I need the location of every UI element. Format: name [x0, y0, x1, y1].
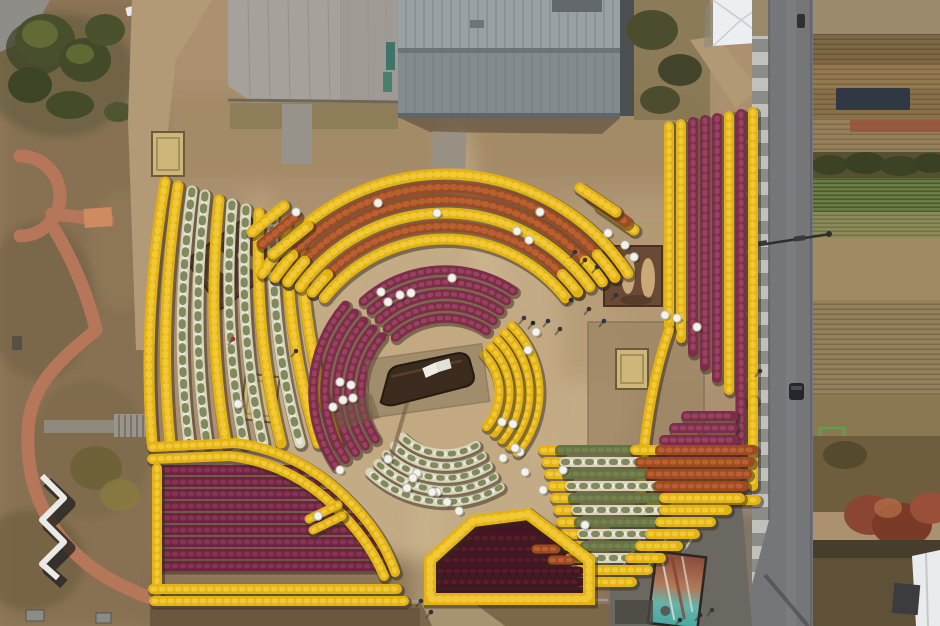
white-ball	[524, 346, 532, 354]
park-bench	[26, 610, 44, 621]
roof-vent	[470, 20, 484, 28]
entrance-walk	[431, 131, 466, 168]
person	[558, 327, 563, 332]
person	[758, 369, 763, 374]
gray-walkway	[282, 104, 312, 164]
white-ball	[433, 209, 441, 217]
white-ball	[604, 229, 612, 237]
person	[573, 250, 578, 255]
white-ball	[349, 394, 357, 402]
roof-ridge	[398, 48, 620, 53]
white-ball	[384, 455, 392, 463]
person	[698, 613, 703, 618]
white-ball	[509, 420, 517, 428]
roof-block	[552, 0, 602, 12]
white-ball	[314, 512, 322, 520]
white-ball	[407, 289, 415, 297]
white-ball	[536, 208, 544, 216]
white-ball	[336, 378, 344, 386]
animal-sculpture	[641, 258, 655, 298]
person	[569, 298, 574, 303]
white-ball	[661, 311, 669, 319]
white-ball	[292, 208, 300, 216]
person	[583, 258, 588, 263]
white-ball	[409, 474, 417, 482]
white-ball	[374, 199, 382, 207]
white-ball	[539, 486, 547, 494]
field-tarp	[836, 88, 910, 110]
person	[587, 307, 592, 312]
white-ball	[525, 236, 533, 244]
white-ball	[630, 253, 638, 261]
white-ball	[521, 468, 529, 476]
white-ball	[377, 288, 385, 296]
person	[522, 316, 527, 321]
person	[429, 610, 434, 615]
white-ball	[403, 484, 411, 492]
person	[531, 321, 536, 326]
white-ball	[443, 498, 451, 506]
park-bench	[96, 613, 111, 623]
white-ball	[347, 381, 355, 389]
white-ball	[336, 466, 344, 474]
grass-strip	[230, 103, 398, 129]
dark-equipment	[892, 583, 921, 615]
white-ball	[234, 400, 242, 408]
person	[678, 618, 683, 623]
white-ball	[455, 507, 463, 515]
white-ball	[396, 291, 404, 299]
person	[546, 319, 551, 324]
white-ball	[329, 403, 337, 411]
white-ball	[448, 274, 456, 282]
person	[710, 608, 715, 613]
roof-eave	[398, 113, 620, 118]
person	[614, 293, 619, 298]
white-ball	[499, 454, 507, 462]
aerial-photo-flower-festival: Aerial drone photo of a chrysanthemum fl…	[0, 0, 940, 626]
person	[602, 319, 607, 324]
photo-canvas: Aerial drone photo of a chrysanthemum fl…	[0, 0, 940, 626]
exercise-equipment	[12, 336, 22, 350]
white-ball	[673, 314, 681, 322]
white-ball	[428, 488, 436, 496]
white-ball	[339, 396, 347, 404]
white-ball	[384, 298, 392, 306]
person	[419, 599, 424, 604]
white-ball	[511, 444, 519, 452]
pink-path-plaza	[83, 207, 112, 228]
white-ball	[532, 328, 540, 336]
moss-patch	[383, 72, 392, 92]
person	[294, 349, 299, 354]
moped	[797, 14, 805, 28]
person	[231, 337, 236, 342]
white-ball	[559, 466, 567, 474]
white-ball	[693, 323, 701, 331]
white-ball	[621, 241, 629, 249]
white-ball	[498, 418, 506, 426]
person	[595, 265, 600, 270]
dark-car	[789, 383, 804, 400]
moss-patch	[386, 42, 395, 70]
white-ball	[513, 227, 521, 235]
white-ball	[581, 521, 589, 529]
